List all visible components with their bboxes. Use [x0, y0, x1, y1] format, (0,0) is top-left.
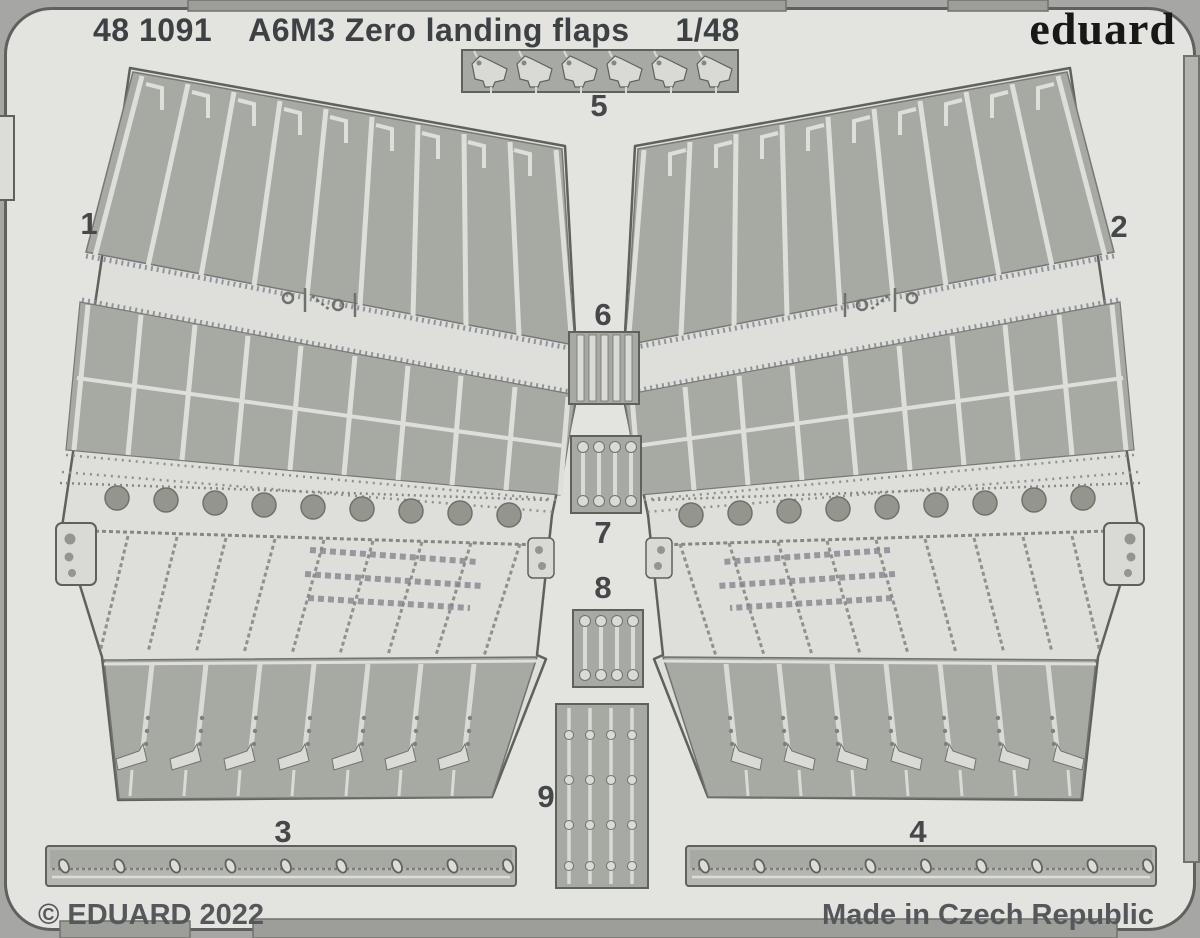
scale-label: 1/48: [676, 12, 740, 49]
part-5-brackets: [462, 50, 738, 93]
fret-sheet-graphic: 1 2 3 4 5 6 7 8 9: [0, 0, 1200, 938]
photoetch-fret-photo: 1 2 3 4 5 6 7 8 9 48 1091 A6M3 Zero land…: [0, 0, 1200, 938]
label-part-3: 3: [274, 814, 291, 849]
label-part-5: 5: [590, 88, 607, 123]
label-part-1: 1: [80, 206, 97, 241]
copyright-text: © EDUARD 2022: [38, 899, 264, 932]
part-7-ladder: [571, 436, 641, 513]
part-8-ladder: [573, 610, 643, 687]
label-part-4: 4: [909, 814, 927, 849]
part-9-rods: [556, 704, 648, 888]
label-part-7: 7: [594, 515, 611, 550]
label-part-2: 2: [1110, 209, 1127, 244]
eduard-logo: eduard: [1029, 2, 1176, 55]
header: 48 1091 A6M3 Zero landing flaps 1/48: [93, 12, 740, 49]
label-part-6: 6: [594, 297, 611, 332]
part-2-right-flap: [622, 68, 1144, 800]
part-3-strip: [46, 846, 516, 886]
part-6-grille: [569, 332, 639, 404]
made-in-text: Made in Czech Republic: [822, 899, 1154, 932]
catalog-number: 48 1091: [93, 12, 212, 49]
part-1-left-flap: [56, 68, 578, 800]
part-4-strip: [686, 846, 1156, 886]
product-title: A6M3 Zero landing flaps: [248, 12, 629, 49]
label-part-9: 9: [537, 779, 554, 814]
label-part-8: 8: [594, 570, 611, 605]
